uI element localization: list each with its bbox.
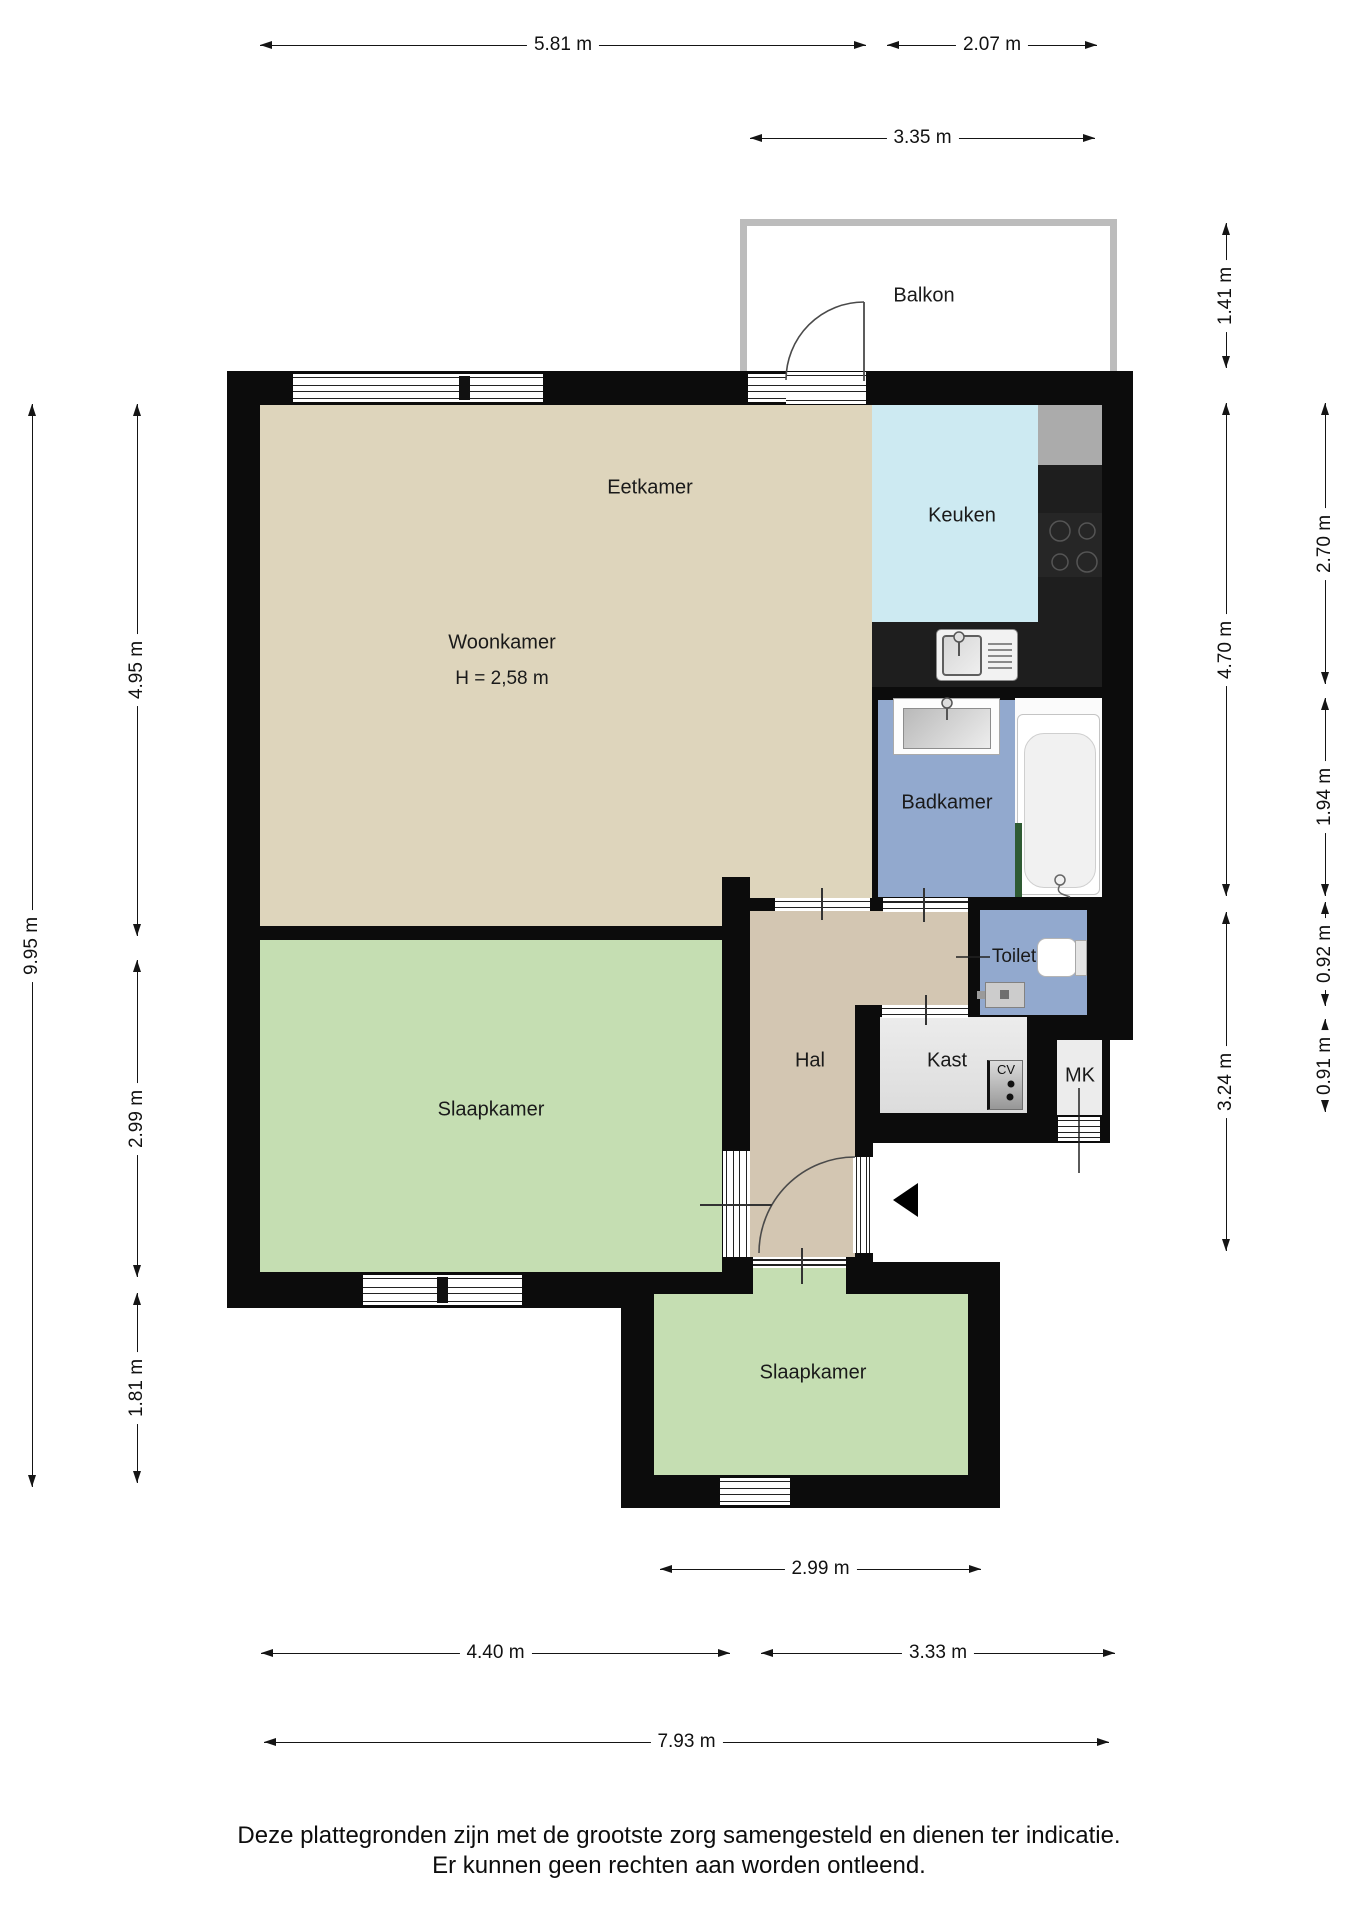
cooktop [1038,513,1102,577]
bathmat-strip [1015,823,1022,897]
room-hal-upper [750,911,968,1005]
kitchen-appliance [1038,405,1102,465]
dim-label: 9.95 m [21,909,43,981]
hal-label: Hal [795,1050,825,1073]
dim-label: 1.81 m [126,1352,148,1424]
dim-left-495: 4.95 m [137,404,138,936]
window-mullion [459,376,470,400]
door-badkamer-opening [883,898,968,912]
dim-right-194: 1.94 m [1325,698,1326,896]
dim-label: 2.99 m [126,1082,148,1154]
window-balkon-side [748,374,786,402]
opening-woonkamer-hal [775,898,870,911]
dim-bottom-793: 7.93 m [264,1742,1109,1743]
dim-label: 1.41 m [1215,259,1237,331]
hand-basin-tap [977,991,985,999]
dim-label: 3.35 m [886,127,958,149]
disclaimer-line2: Er kunnen geen rechten aan worden ontlee… [0,1852,1358,1880]
wall-woonkamer-hal [722,877,750,903]
dim-left-181: 1.81 m [137,1293,138,1483]
kast-label: Kast [927,1050,967,1073]
dim-label: 2.99 m [784,1558,856,1580]
dim-top-335: 3.35 m [750,138,1095,139]
dim-label: 0.91 m [1314,1029,1336,1101]
hand-basin [985,982,1025,1008]
bathtub-tub [1024,733,1096,888]
window-mullion [437,1277,448,1303]
room-hal-lower [750,1005,855,1257]
dim-top-581: 5.81 m [260,45,866,46]
balkon-wall-right [1110,219,1117,371]
keuken-label: Keuken [928,505,996,528]
entrance-arrow-icon [893,1183,918,1217]
dim-right-270: 2.70 m [1325,403,1326,684]
cv-label: CV [997,1062,1015,1077]
dim-bottom-333: 3.33 m [761,1653,1115,1654]
dim-label: 4.95 m [126,634,148,706]
dim-label: 1.94 m [1314,761,1336,833]
toilet-bowl [1037,938,1077,977]
dim-label: 0.92 m [1314,918,1336,990]
woonkamer-height-label: H = 2,58 m [455,668,548,690]
dim-top-207: 2.07 m [887,45,1097,46]
badkamer-label: Badkamer [901,792,992,815]
balkon-wall-left [740,219,747,371]
dim-label: 2.07 m [956,34,1028,56]
dim-bottom-299: 2.99 m [660,1569,981,1570]
dim-label: 2.70 m [1314,507,1336,579]
front-door-strip [853,1157,873,1253]
toilet-tank [1075,940,1087,976]
dim-label: 5.81 m [527,34,599,56]
slaapkamer2-label: Slaapkamer [760,1362,867,1385]
balkon-wall-top [740,219,1117,226]
door-mk-bottom [1058,1117,1100,1141]
dim-right-324: 3.24 m [1226,912,1227,1251]
window-slaapkamer2-bottom [720,1478,790,1505]
cv-boiler: CV [987,1060,1023,1110]
slaapkamer2-doorway-floor [753,1268,846,1294]
toilet-label: Toilet [992,946,1036,968]
room-slaapkamer2 [654,1294,968,1475]
bathroom-sink-basin [903,708,991,749]
dim-label: 7.93 m [650,1731,722,1753]
dim-right-091: 0.91 m [1325,1019,1326,1112]
dim-right-141: 1.41 m [1226,223,1227,368]
dim-label: 4.40 m [459,1642,531,1664]
woonkamer-label: Woonkamer [448,632,555,655]
dim-bottom-440: 4.40 m [261,1653,730,1654]
window-eetkamer-top [293,374,543,402]
dim-left-995: 9.95 m [32,404,33,1487]
dim-left-299: 2.99 m [137,960,138,1277]
eetkamer-label: Eetkamer [607,477,693,500]
opening-slaapkamer2 [753,1257,846,1268]
slaapkamer1-label: Slaapkamer [438,1099,545,1122]
room-eetkamer [722,405,872,898]
dim-label: 4.70 m [1215,613,1237,685]
dim-right-092: 0.92 m [1325,902,1326,1006]
mk-label: MK [1065,1065,1095,1088]
dim-right-470: 4.70 m [1226,403,1227,896]
door-kast-opening [882,1005,968,1018]
dim-label: 3.33 m [902,1642,974,1664]
door-slaapkamer1-opening [723,1151,750,1257]
kitchen-sink-basin [942,635,982,676]
disclaimer-line1: Deze plattegronden zijn met de grootste … [0,1822,1358,1850]
balkon-label: Balkon [893,285,954,308]
door-balkon-threshold [786,372,866,404]
dim-label: 3.24 m [1215,1045,1237,1117]
floorplan-page: { "rooms": { "balkon": {"label": "Balkon… [0,0,1358,1920]
